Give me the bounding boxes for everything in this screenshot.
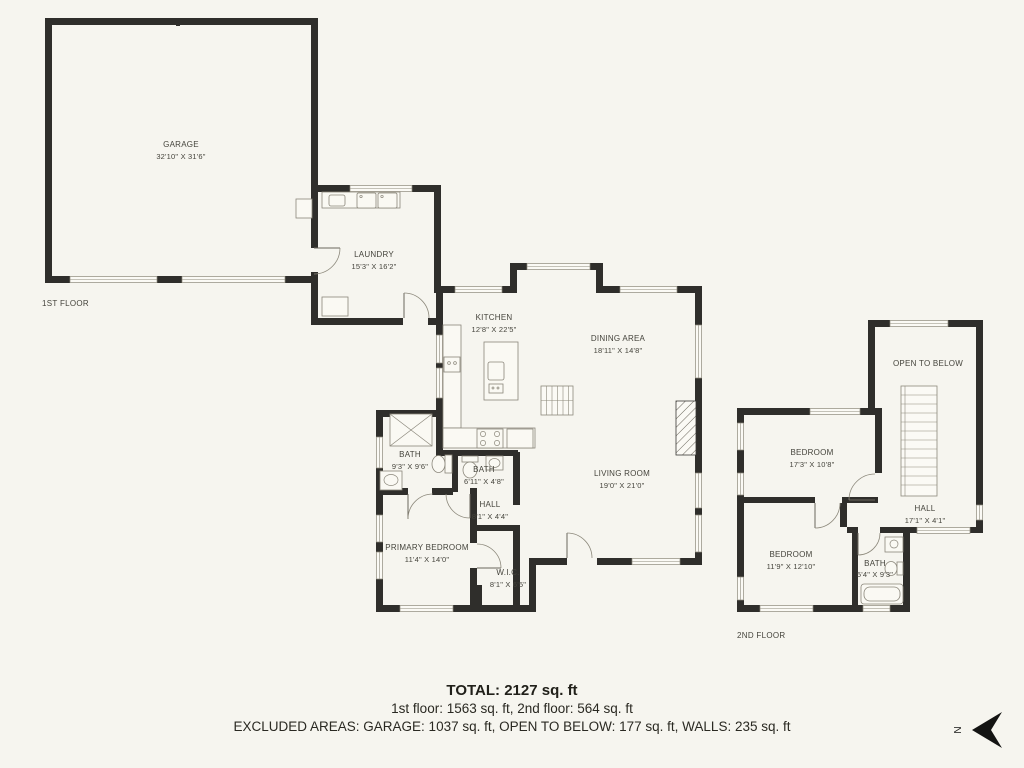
bath2-dims: 6'11" X 4'8" bbox=[464, 477, 504, 486]
hall1-dims: 8'1" X 4'4" bbox=[472, 512, 508, 521]
kitchen-label: KITCHEN bbox=[476, 313, 513, 322]
second-floor-plan: OPEN TO BELOW BEDROOM 17'3" X 10'8" HALL… bbox=[737, 320, 983, 640]
summary-total: TOTAL: 2127 sq. ft bbox=[446, 682, 577, 699]
bedroom3-dims: 11'9" X 12'10" bbox=[767, 562, 816, 571]
bath3-label: BATH bbox=[864, 559, 886, 568]
dining-dims: 18'11" X 14'8" bbox=[594, 346, 643, 355]
laundry-dims: 15'3" X 16'2" bbox=[352, 262, 397, 271]
second-floor-tag: 2ND FLOOR bbox=[737, 631, 786, 640]
compass: N bbox=[953, 712, 1002, 748]
stairs-second-floor bbox=[901, 386, 937, 496]
bath2-label: BATH bbox=[473, 465, 495, 474]
north-arrow-icon bbox=[972, 712, 1002, 748]
primary-bedroom-dims: 11'4" X 14'0" bbox=[405, 555, 450, 564]
bedroom2-dims: 17'3" X 10'8" bbox=[790, 460, 835, 469]
wic-label: W.I.C. bbox=[496, 568, 519, 577]
hall2-dims: 17'1" X 4'1" bbox=[905, 516, 946, 525]
first-floor-tag: 1ST FLOOR bbox=[42, 299, 89, 308]
bath1-dims: 9'3" X 9'6" bbox=[392, 462, 428, 471]
first-floor-plan: GARAGE 32'10" X 31'6" LAUNDRY 15'3" X 16… bbox=[42, 18, 702, 612]
summary-excluded: EXCLUDED AREAS: GARAGE: 1037 sq. ft, OPE… bbox=[234, 719, 791, 734]
first-floor-fixtures bbox=[296, 192, 535, 490]
garage-label: GARAGE bbox=[163, 140, 199, 149]
second-floor-doors bbox=[815, 474, 880, 555]
hall2-label: HALL bbox=[914, 504, 935, 513]
stairs-first-floor bbox=[541, 386, 573, 415]
hall1-label: HALL bbox=[479, 500, 500, 509]
dining-label: DINING AREA bbox=[591, 334, 646, 343]
living-dims: 19'0" X 21'0" bbox=[600, 481, 645, 490]
bath3-dims: 5'4" X 9'3" bbox=[857, 570, 893, 579]
floor-plan-page: GARAGE 32'10" X 31'6" LAUNDRY 15'3" X 16… bbox=[0, 0, 1024, 768]
primary-bedroom-label: PRIMARY BEDROOM bbox=[385, 543, 469, 552]
living-label: LIVING ROOM bbox=[594, 469, 650, 478]
compass-north-letter: N bbox=[953, 726, 964, 733]
bedroom2-label: BEDROOM bbox=[790, 448, 833, 457]
kitchen-dims: 12'8" X 22'5" bbox=[472, 325, 517, 334]
laundry-label: LAUNDRY bbox=[354, 250, 394, 259]
open-to-below-label: OPEN TO BELOW bbox=[893, 359, 963, 368]
bedroom3-label: BEDROOM bbox=[769, 550, 812, 559]
bath1-label: BATH bbox=[399, 450, 421, 459]
summary-floors: 1st floor: 1563 sq. ft, 2nd floor: 564 s… bbox=[391, 701, 633, 716]
floor-plan-svg: GARAGE 32'10" X 31'6" LAUNDRY 15'3" X 16… bbox=[0, 0, 1024, 768]
fireplace bbox=[676, 401, 696, 455]
garage-dims: 32'10" X 31'6" bbox=[156, 152, 205, 161]
area-summary: TOTAL: 2127 sq. ft 1st floor: 1563 sq. f… bbox=[234, 682, 791, 734]
wic-dims: 8'1" X 6'5" bbox=[490, 580, 526, 589]
